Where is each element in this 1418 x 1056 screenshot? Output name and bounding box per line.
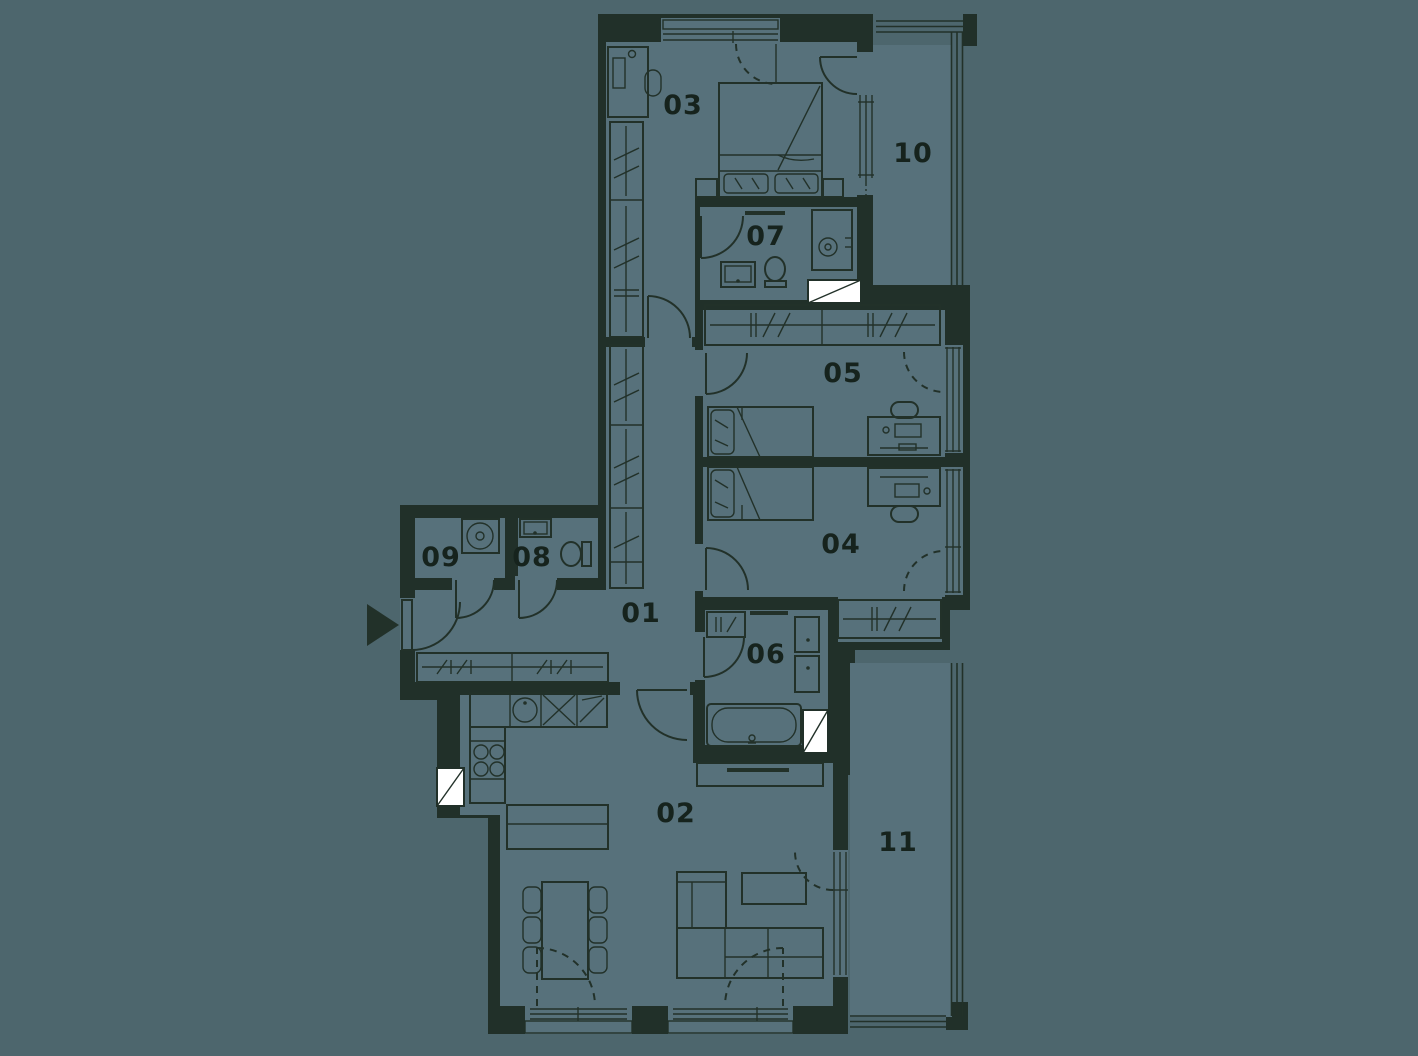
window-bottom-left	[525, 1006, 632, 1034]
floor-plan: 01 02 03 04 05 06 07 08 09 10 11	[0, 0, 1418, 1056]
window-room-04	[943, 467, 963, 595]
room-label-03: 03	[663, 90, 703, 121]
room-label-06: 06	[746, 639, 786, 670]
room-label-10: 10	[893, 138, 933, 169]
shaft-near-room-06	[803, 710, 828, 753]
window-room-03-balcony	[856, 95, 874, 200]
room-label-04: 04	[821, 529, 861, 560]
window-room-05	[943, 345, 963, 453]
shaft-near-kitchen	[437, 768, 464, 806]
shelf-icon	[745, 211, 785, 215]
window-room-02-balcony	[831, 850, 848, 977]
window-top-room-03	[661, 18, 780, 44]
room-label-08: 08	[512, 542, 552, 573]
room-label-01: 01	[621, 598, 661, 629]
window-bottom-right	[668, 1006, 793, 1034]
shaft-near-room-07	[808, 280, 861, 303]
room-label-07: 07	[746, 221, 786, 252]
room-label-09: 09	[421, 542, 461, 573]
room-label-02: 02	[656, 798, 696, 829]
room-label-11: 11	[878, 827, 918, 858]
room-label-05: 05	[823, 358, 863, 389]
shelf-icon	[750, 611, 788, 615]
